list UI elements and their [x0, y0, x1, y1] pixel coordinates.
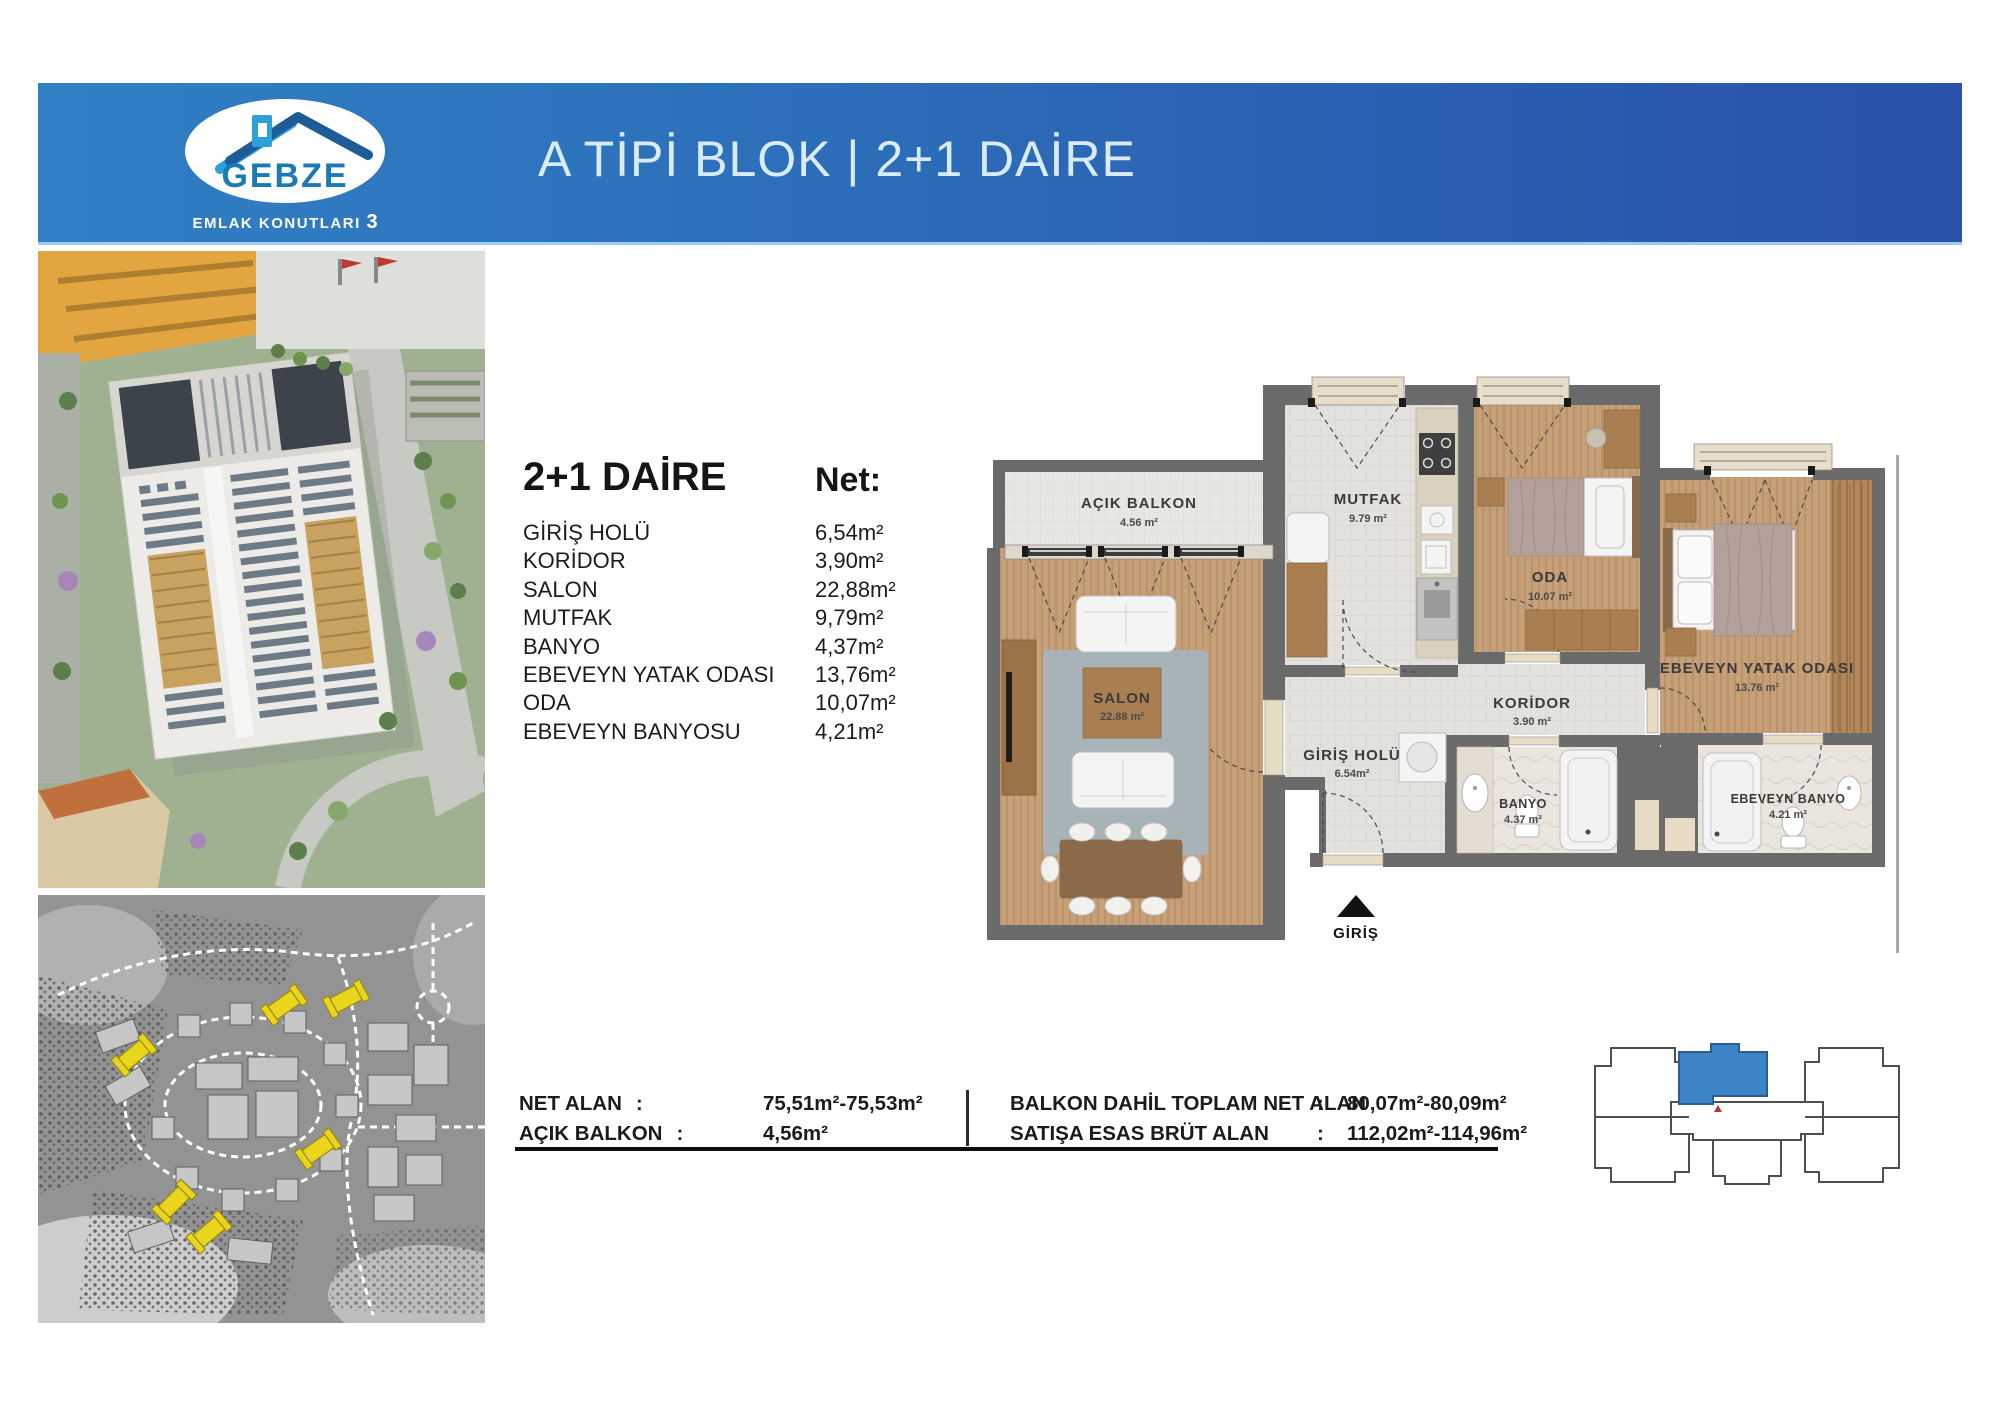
label-ebeveyn-banyo: EBEVEYN BANYO — [1731, 792, 1846, 806]
room-list-item: SALON22,88m² — [523, 577, 943, 605]
area-summary-left: NET ALAN:75,51m²-75,53m² AÇIK BALKON:4,5… — [519, 1092, 683, 1152]
area-value: 4,56m² — [763, 1122, 828, 1146]
room-area: 22,88m² — [815, 577, 896, 603]
logo-subtitle: EMLAK KONUTLARI 3 — [170, 211, 400, 234]
room-area: 6,54m² — [815, 520, 883, 546]
room-list-item: GİRİŞ HOLÜ6,54m² — [523, 520, 943, 548]
label-ebeveyn-yatak: EBEVEYN YATAK ODASI — [1660, 660, 1854, 677]
logo-brand-text: GEBZE — [221, 157, 348, 195]
label-banyo-area: 4.37 m² — [1504, 814, 1542, 826]
room-name: BANYO — [523, 634, 600, 659]
colon: : — [677, 1122, 684, 1145]
label-salon: SALON — [1093, 690, 1151, 707]
gebze-logo: GEBZE — [170, 95, 400, 213]
label-giris-holu-area: 6.54m² — [1335, 768, 1370, 780]
label-salon-area: 22.88 m² — [1100, 711, 1144, 723]
label-koridor-area: 3.90 m² — [1513, 716, 1551, 728]
room-list-item: ODA10,07m² — [523, 690, 943, 718]
area-label: AÇIK BALKON — [519, 1122, 663, 1145]
entrance-arrow: GİRİŞ — [1333, 895, 1379, 942]
colon: : — [1317, 1092, 1324, 1116]
room-name: EBEVEYN BANYOSU — [523, 719, 741, 744]
label-oda: ODA — [1532, 569, 1568, 586]
header-band: GEBZE EMLAK KONUTLARI 3 A TİPİ BLOK | 2+… — [38, 83, 1962, 245]
brochure-page: GEBZE EMLAK KONUTLARI 3 A TİPİ BLOK | 2+… — [0, 0, 2000, 1413]
area-value: 80,07m²-80,09m² — [1347, 1092, 1507, 1116]
area-label: BALKON DAHİL TOPLAM NET ALAN — [1010, 1092, 1366, 1115]
label-mutfak-area: 9.79 m² — [1349, 513, 1387, 525]
summary-divider — [966, 1090, 969, 1146]
room-name: SALON — [523, 577, 598, 602]
room-area: 9,79m² — [815, 605, 883, 631]
area-label: NET ALAN — [519, 1092, 622, 1115]
room-name: KORİDOR — [523, 548, 626, 573]
plan-side-rule — [1896, 455, 1899, 953]
area-value: 75,51m²-75,53m² — [763, 1092, 923, 1116]
room-list-item: EBEVEYN YATAK ODASI13,76m² — [523, 662, 943, 690]
area-value: 112,02m²-114,96m² — [1347, 1122, 1527, 1146]
site-plan-image — [38, 895, 485, 1323]
room-name: MUTFAK — [523, 605, 612, 630]
label-oda-area: 10.07 m² — [1528, 591, 1572, 603]
area-label: SATIŞA ESAS BRÜT ALAN — [1010, 1122, 1269, 1145]
page-title: A TİPİ BLOK | 2+1 DAİRE — [538, 130, 1136, 188]
room-area: 4,37m² — [815, 634, 883, 660]
label-koridor: KORİDOR — [1493, 695, 1571, 712]
colon: : — [1317, 1122, 1324, 1146]
room-list: GİRİŞ HOLÜ6,54m² KORİDOR3,90m² SALON22,8… — [523, 520, 943, 747]
logo-subtitle-number: 3 — [366, 211, 377, 233]
room-list-item: BANYO4,37m² — [523, 634, 943, 662]
entrance-notch — [1285, 790, 1319, 853]
unit-summary-title: 2+1 DAİRE — [523, 455, 726, 500]
logo-subtitle-text: EMLAK KONUTLARI — [192, 215, 360, 232]
label-ebeveyn-banyo-area: 4.21 m² — [1769, 809, 1807, 821]
area-summary-right: BALKON DAHİL TOPLAM NET ALAN:80,07m²-80,… — [1010, 1092, 1366, 1152]
colon: : — [636, 1092, 643, 1115]
room-name: GİRİŞ HOLÜ — [523, 520, 650, 545]
unit-summary-net-label: Net: — [815, 461, 881, 500]
room-area: 4,21m² — [815, 719, 883, 745]
label-banyo: BANYO — [1499, 797, 1547, 811]
label-acik-balkon: AÇIK BALKON — [1081, 495, 1197, 512]
room-list-item: MUTFAK9,79m² — [523, 605, 943, 633]
label-ebeveyn-yatak-area: 13.76 m² — [1735, 682, 1779, 694]
area-summary-row: BALKON DAHİL TOPLAM NET ALAN:80,07m²-80,… — [1010, 1092, 1366, 1122]
building-render-image — [38, 251, 485, 888]
entrance-label: GİRİŞ — [1333, 925, 1379, 942]
room-name: EBEVEYN YATAK ODASI — [523, 662, 774, 687]
area-summary-row: NET ALAN:75,51m²-75,53m² — [519, 1092, 683, 1122]
room-list-item: KORİDOR3,90m² — [523, 548, 943, 576]
summary-underline — [515, 1147, 1498, 1151]
label-mutfak: MUTFAK — [1334, 491, 1403, 508]
label-acik-balkon-area: 4.56 m² — [1120, 517, 1158, 529]
block-position-key — [1583, 1022, 1913, 1232]
room-area: 13,76m² — [815, 662, 896, 688]
floor-plan: AÇIK BALKON 4.56 m² MUTFAK 9.79 m² ODA 1… — [985, 375, 1910, 955]
shaft-niche — [1635, 800, 1659, 850]
washer — [1399, 733, 1446, 782]
highlighted-unit — [1679, 1044, 1767, 1104]
room-area: 3,90m² — [815, 548, 883, 574]
room-name: ODA — [523, 690, 571, 715]
shaft-niche-2 — [1665, 818, 1695, 851]
room-list-item: EBEVEYN BANYOSU4,21m² — [523, 719, 943, 747]
room-area: 10,07m² — [815, 690, 896, 716]
render-tower — [109, 351, 415, 779]
label-giris-holu: GİRİŞ HOLÜ — [1303, 747, 1401, 764]
